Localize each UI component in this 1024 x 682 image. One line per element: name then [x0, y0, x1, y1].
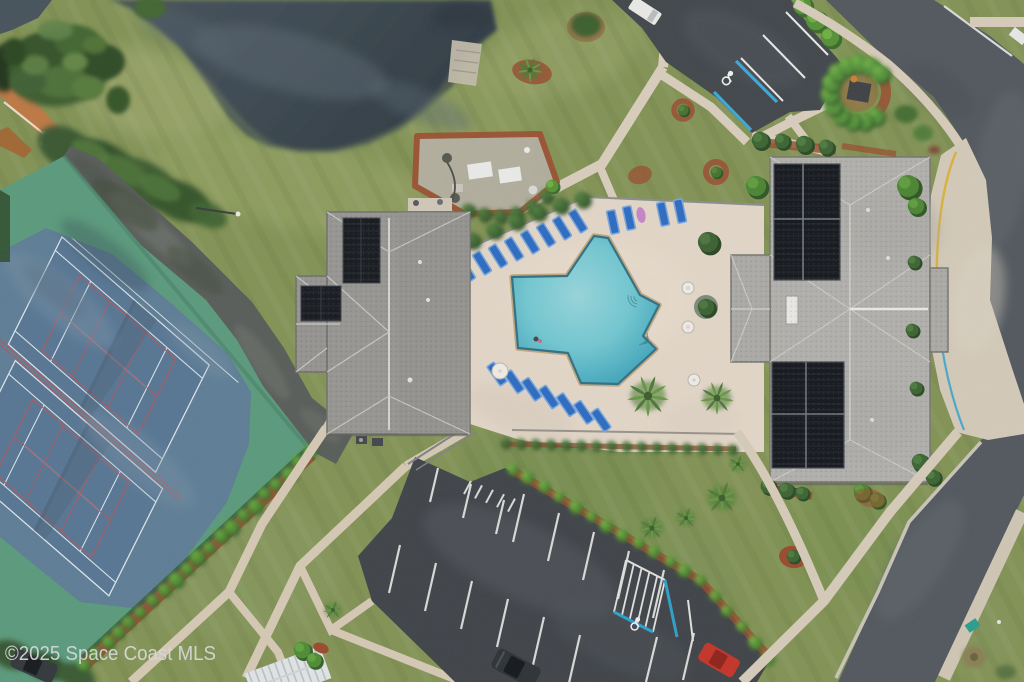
svg-text:©2025 Space Coast MLS: ©2025 Space Coast MLS	[5, 642, 216, 665]
